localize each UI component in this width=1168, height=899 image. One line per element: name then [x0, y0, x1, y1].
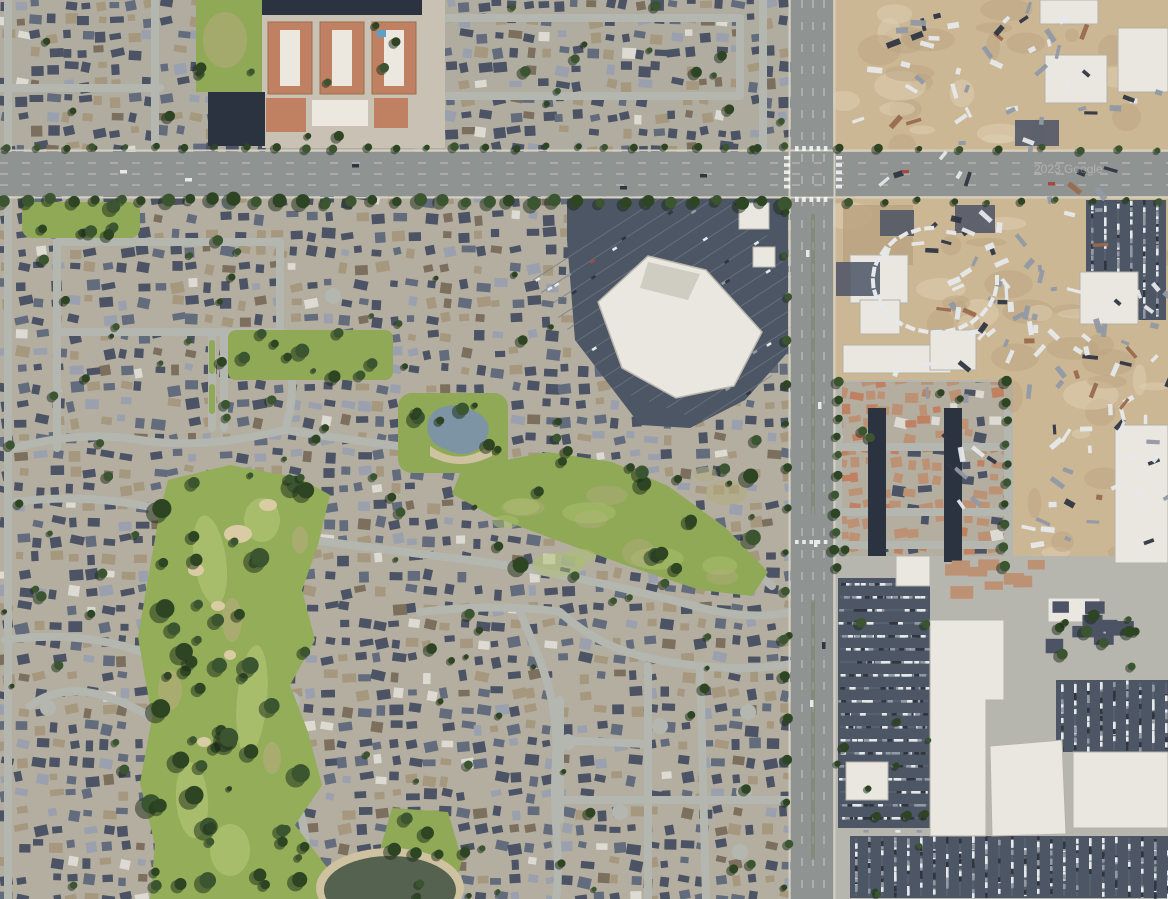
imagery-watermark: 2023 Google: [1034, 162, 1103, 176]
satellite-map[interactable]: 2023 Google: [0, 0, 1168, 899]
